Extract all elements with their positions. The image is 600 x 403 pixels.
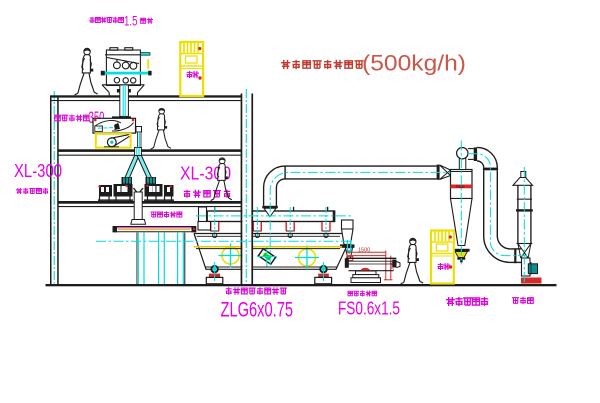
svg-text:FS0.6x1.5: FS0.6x1.5 (338, 299, 400, 319)
svg-text:XL-300: XL-300 (14, 161, 62, 181)
svg-text:1.5: 1.5 (124, 13, 138, 29)
svg-text:(500kg/h): (500kg/h) (362, 51, 466, 76)
svg-text:P400: P400 (456, 185, 464, 189)
svg-text:ZLG6x0.75: ZLG6x0.75 (221, 299, 294, 322)
svg-text:1500: 1500 (358, 248, 370, 254)
